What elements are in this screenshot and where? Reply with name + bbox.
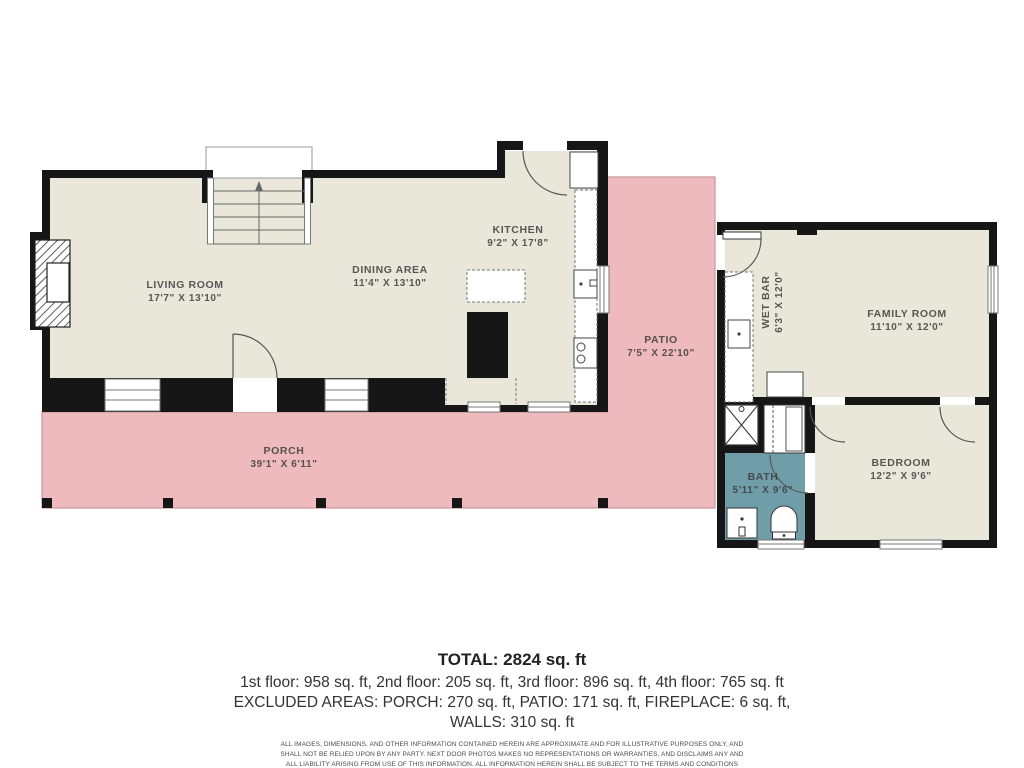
kitchen-door-opening	[523, 141, 567, 150]
room-name: FAMILY ROOM	[867, 307, 947, 321]
room-dims: 6'3" X 12'0"	[773, 271, 787, 332]
window-icon	[880, 540, 942, 549]
room-name: LIVING ROOM	[146, 278, 223, 292]
bath-sink-icon	[727, 508, 757, 538]
shower-icon	[725, 405, 758, 445]
room-name: BEDROOM	[870, 456, 931, 470]
room-label-family-room: FAMILY ROOM 11'10" X 12'0"	[867, 307, 947, 335]
room-dims: 7'5" X 22'10"	[627, 347, 695, 361]
room-dims: 11'4" X 13'10"	[352, 277, 428, 291]
floor-plan: LIVING ROOM 17'7" X 13'10" DINING AREA 1…	[0, 0, 1024, 600]
stair-bumpout	[206, 147, 312, 178]
window-icon	[596, 266, 609, 313]
stove-icon	[574, 338, 597, 368]
room-label-porch: PORCH 39'1" X 6'11"	[250, 444, 317, 472]
disclaimer-text: ALL IMAGES, DIMENSIONS, AND OTHER INFORM…	[277, 740, 747, 768]
room-name: WET BAR	[759, 271, 773, 332]
window-icon	[325, 379, 368, 411]
room-label-wet-bar: WET BAR 6'3" X 12'0"	[759, 271, 787, 332]
room-dims: 11'10" X 12'0"	[867, 321, 947, 335]
room-dims: 12'2" X 9'6"	[870, 470, 931, 484]
floor-areas: 1st floor: 958 sq. ft, 2nd floor: 205 sq…	[0, 673, 1024, 693]
nook-floor	[445, 378, 597, 405]
room-label-bedroom: BEDROOM 12'2" X 9'6"	[870, 456, 931, 484]
excluded-areas-line1: EXCLUDED AREAS: PORCH: 270 sq. ft, PATIO…	[0, 693, 1024, 713]
room-name: KITCHEN	[487, 223, 548, 237]
kitchen-sink-icon	[574, 270, 597, 298]
wet-bar-door-opening	[717, 235, 725, 270]
closet	[764, 405, 805, 453]
room-dims: 17'7" X 13'10"	[146, 292, 223, 306]
room-name: BATH	[733, 470, 794, 484]
window-icon	[988, 266, 998, 313]
area-summary: TOTAL: 2824 sq. ft 1st floor: 958 sq. ft…	[0, 650, 1024, 768]
excluded-areas-line2: WALLS: 310 sq. ft	[0, 713, 1024, 733]
living-room-door-opening	[233, 378, 277, 412]
room-dims: 9'2" X 17'8"	[487, 237, 548, 251]
room-dims: 39'1" X 6'11"	[250, 458, 317, 472]
room-dims: 5'11" X 9'6"	[733, 484, 794, 498]
toilet-icon	[771, 506, 797, 539]
window-icon	[528, 402, 570, 412]
floor-plan-page: LIVING ROOM 17'7" X 13'10" DINING AREA 1…	[0, 0, 1024, 768]
room-name: PORCH	[250, 444, 317, 458]
room-label-patio: PATIO 7'5" X 22'10"	[627, 333, 695, 361]
room-label-dining-area: DINING AREA 11'4" X 13'10"	[352, 263, 428, 291]
room-name: DINING AREA	[352, 263, 428, 277]
total-area: TOTAL: 2824 sq. ft	[0, 650, 1024, 670]
room-label-kitchen: KITCHEN 9'2" X 17'8"	[487, 223, 548, 251]
fireplace-icon	[35, 240, 70, 327]
refrigerator-icon	[570, 152, 598, 188]
window-icon	[758, 540, 804, 549]
wet-bar-sink-icon	[728, 320, 750, 348]
window-icon	[105, 379, 160, 411]
room-name: PATIO	[627, 333, 695, 347]
room-label-bath: BATH 5'11" X 9'6"	[733, 470, 794, 498]
wet-bar-island-counter	[767, 372, 803, 397]
kitchen-peninsula-counter	[467, 270, 525, 302]
window-icon	[468, 402, 500, 412]
room-label-living-room: LIVING ROOM 17'7" X 13'10"	[146, 278, 223, 306]
